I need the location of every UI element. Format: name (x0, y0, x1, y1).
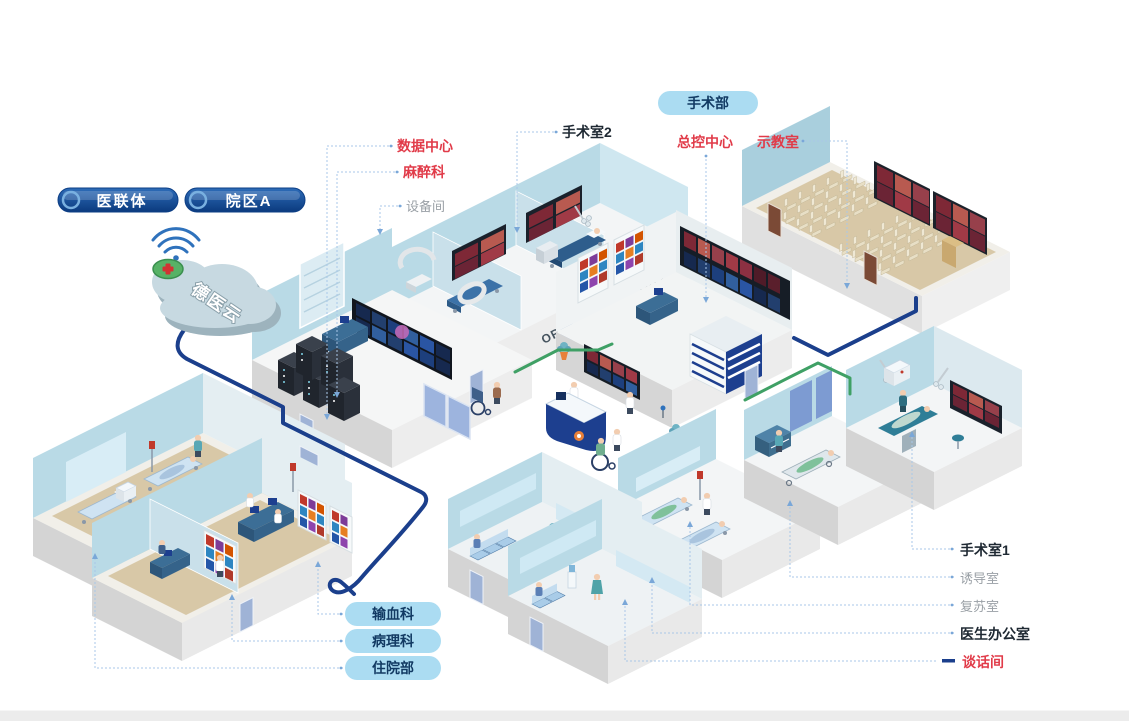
label-anesthesia: 麻醉科 (402, 164, 445, 180)
label-doctor-office: 医生办公室 (960, 626, 1030, 642)
person-induction-nurse (775, 430, 783, 452)
footer-strip (0, 711, 1129, 721)
pill-blood-transfusion: 输血科 (345, 602, 441, 626)
water-cooler (568, 565, 576, 588)
person-ward-nurse (194, 435, 202, 457)
person-waiting-2 (536, 582, 543, 596)
cloud-platform-icon: 德医云 (152, 260, 281, 337)
badge-surgery-dept: 手术部 (658, 91, 758, 115)
waiting-room-1-door (470, 570, 483, 605)
badge-campus-label: 院区A (226, 192, 273, 210)
label-demo-classroom: 示教室 (757, 134, 799, 150)
hospital-isometric-diagram: OR3 OR2 (0, 0, 1129, 721)
label-equipment-room: 设备间 (406, 199, 445, 214)
person-hall-walking (626, 392, 634, 414)
medical-cross-icon (153, 260, 183, 279)
person-pathologist-2 (275, 509, 282, 523)
badge-alliance-label: 医联体 (96, 192, 147, 210)
label-talk-room: 谈话间 (962, 654, 1004, 670)
badge-campus: 院区A (185, 188, 305, 212)
badge-alliance: 医联体 (58, 188, 178, 212)
label-data-center: 数据中心 (397, 138, 453, 154)
person-lab-seated (159, 540, 166, 554)
lab-door (240, 598, 253, 633)
person-lab-standing (216, 555, 224, 577)
label-operating-room-2: 手术室2 (562, 124, 612, 140)
person-surgeon (899, 390, 907, 412)
person-hall-man (493, 382, 501, 404)
pill-pathology-label: 病理科 (372, 633, 414, 649)
label-operating-room-1: 手术室1 (960, 542, 1010, 558)
diagram-canvas: OR3 OR2 (0, 0, 1129, 721)
pill-inpatient-label: 住院部 (372, 660, 414, 676)
person-pathologist-1 (247, 493, 254, 507)
classroom-door-1 (768, 203, 781, 238)
label-recovery-room: 复苏室 (960, 599, 999, 614)
person-waiting-1 (474, 534, 481, 548)
person-recovery-doctor (703, 493, 711, 515)
label-induction-room: 诱导室 (960, 571, 999, 586)
wifi-icon (153, 229, 199, 261)
classroom-door-2 (864, 251, 877, 286)
pill-pathology: 病理科 (345, 629, 441, 653)
reception-desk (546, 392, 606, 451)
badge-surgery-dept-label: 手术部 (687, 95, 729, 111)
pill-blood-transfusion-label: 输血科 (372, 606, 414, 622)
pill-inpatient: 住院部 (345, 656, 441, 680)
talk-room-door (530, 617, 543, 652)
label-master-control: 总控中心 (677, 134, 733, 150)
